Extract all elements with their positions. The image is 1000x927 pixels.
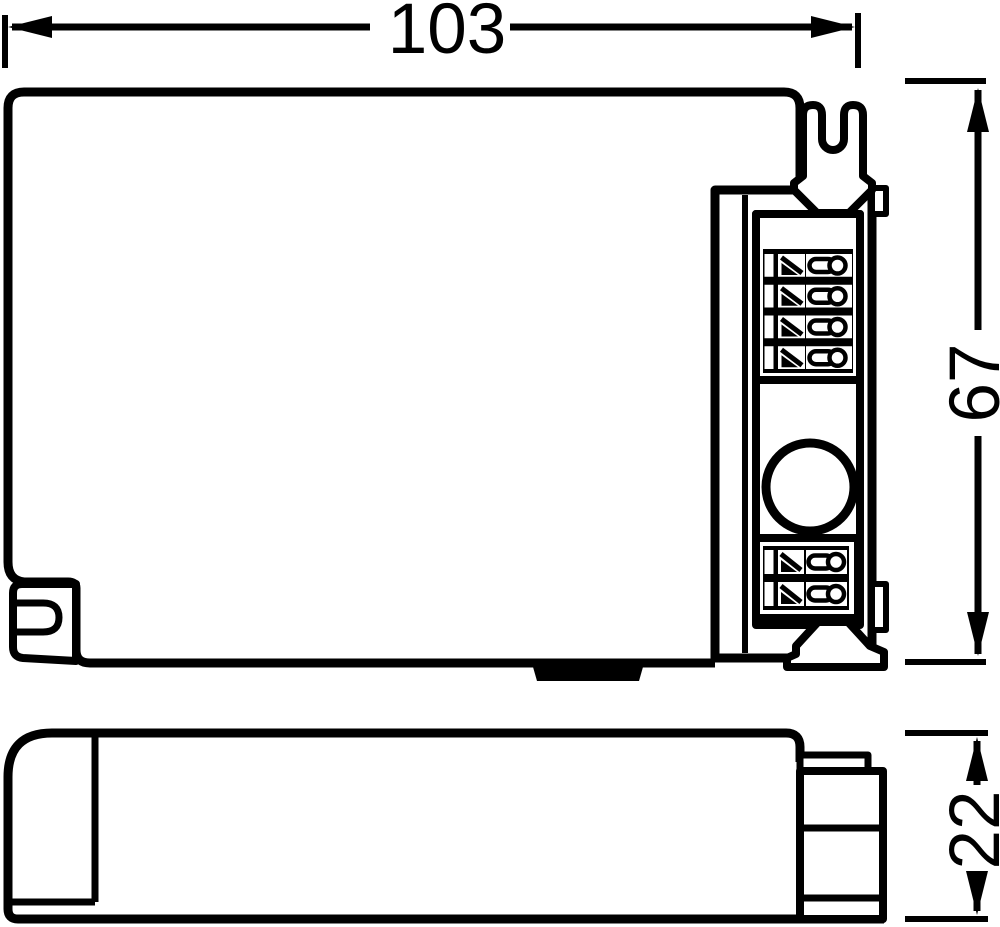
width-dimension: 103 <box>5 0 858 69</box>
wire-hole-icon <box>828 554 844 570</box>
knockout-circle <box>766 443 854 531</box>
device-top-view <box>8 92 886 681</box>
wire-hole-icon <box>828 586 844 602</box>
height-dimension: 67 <box>905 81 1000 662</box>
wire-hole-icon <box>830 258 846 274</box>
arrow-up-icon <box>966 737 988 781</box>
mounting-tab-bottom-left <box>13 584 76 661</box>
arrow-left-icon <box>8 16 52 38</box>
housing-outline <box>8 92 800 663</box>
arrow-up-icon <box>967 88 989 132</box>
terminal-block-4pole <box>756 214 860 380</box>
dimension-drawing: 103 <box>0 0 1000 927</box>
device-side-view <box>8 733 884 919</box>
width-dimension-label: 103 <box>388 0 506 69</box>
drawing-canvas: 103 <box>0 0 1000 927</box>
depth-dimension-label: 22 <box>936 791 1000 870</box>
depth-dimension: 22 <box>905 733 1000 919</box>
wire-hole-icon <box>830 319 846 335</box>
arrow-down-icon <box>967 612 989 656</box>
height-dimension-label: 67 <box>936 344 1000 423</box>
column-step-bottom <box>872 584 886 630</box>
side-profile-outline <box>8 733 884 919</box>
snap-tab-bottom-edge <box>531 660 645 681</box>
wire-hole-icon <box>830 350 846 366</box>
terminal-block-2pole <box>756 538 858 618</box>
arrow-down-icon <box>966 871 988 915</box>
arrow-right-icon <box>811 16 855 38</box>
wire-hole-icon <box>830 288 846 304</box>
mounting-slot-top-right-icon <box>794 105 872 213</box>
